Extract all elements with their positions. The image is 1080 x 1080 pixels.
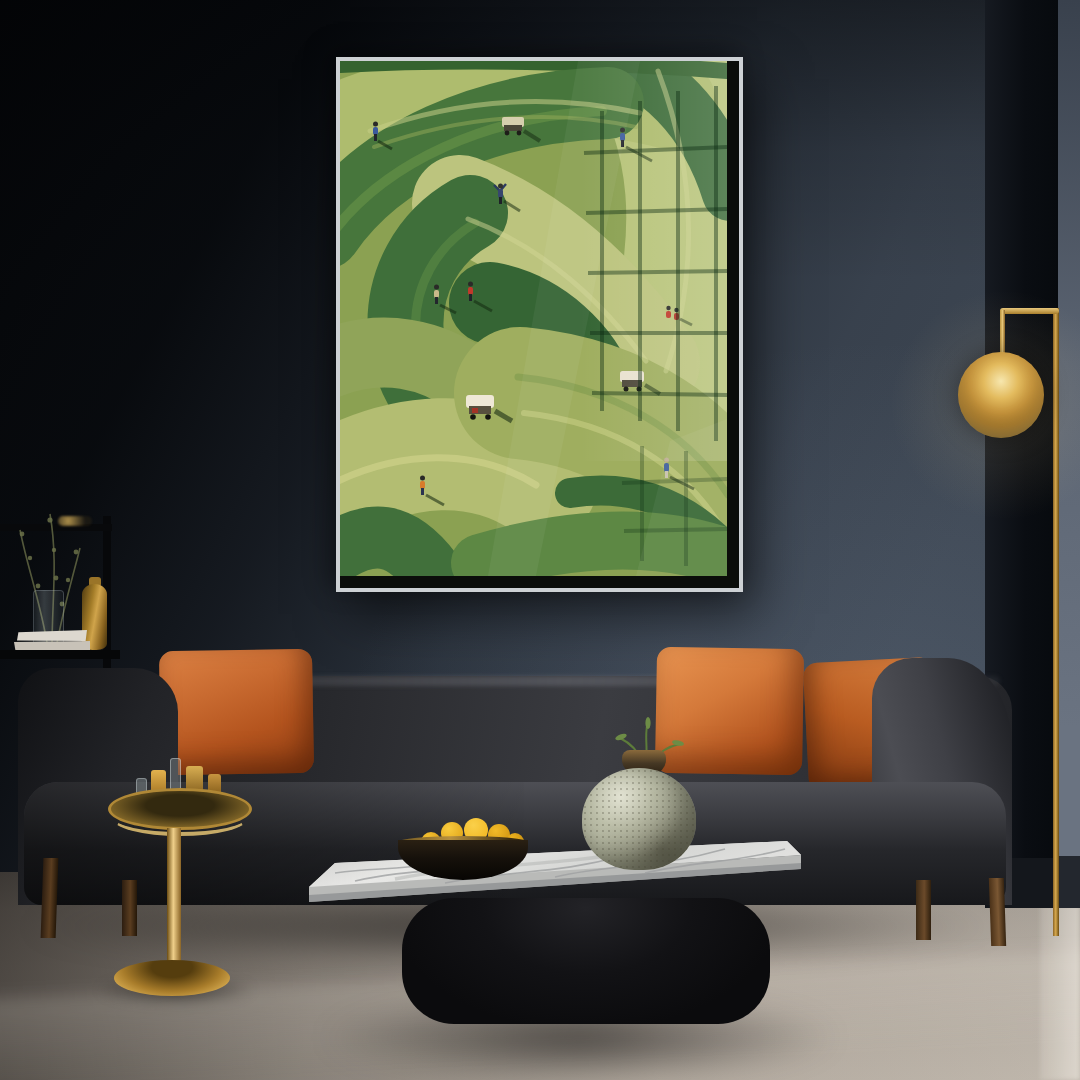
artwork-canvas [340, 61, 727, 576]
gold-vase [82, 584, 107, 650]
glass-vase [33, 590, 64, 650]
sofa-leg-mid-left [122, 880, 137, 936]
coffee-table-marble-top [295, 833, 810, 923]
sofa-leg-mid-right [916, 880, 931, 940]
scene-root [0, 0, 1080, 1080]
artwork-frame [336, 57, 743, 592]
lamp-globe [958, 352, 1044, 438]
pillow-left-square [159, 649, 314, 776]
floor-right-light [1040, 905, 1080, 1080]
sofa-leg-front-right [989, 878, 1006, 946]
baseboard-corner [1058, 856, 1080, 908]
sofa-leg-front-left [41, 858, 59, 938]
shelf-board [0, 650, 120, 659]
side-table-base [114, 960, 230, 996]
lamp-pole [1053, 308, 1059, 936]
ceramic-vase-speckle [582, 768, 696, 870]
lamp-arm [1000, 308, 1059, 314]
side-table-stem [167, 828, 181, 976]
